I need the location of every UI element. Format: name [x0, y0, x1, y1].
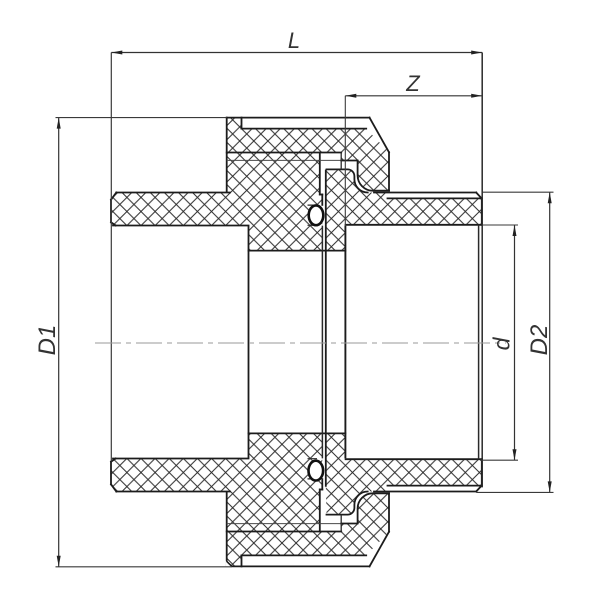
svg-text:Z: Z	[405, 71, 421, 96]
svg-text:L: L	[288, 28, 300, 53]
svg-text:d: d	[489, 336, 515, 350]
svg-text:D1: D1	[34, 325, 61, 356]
svg-text:D2: D2	[526, 325, 553, 356]
